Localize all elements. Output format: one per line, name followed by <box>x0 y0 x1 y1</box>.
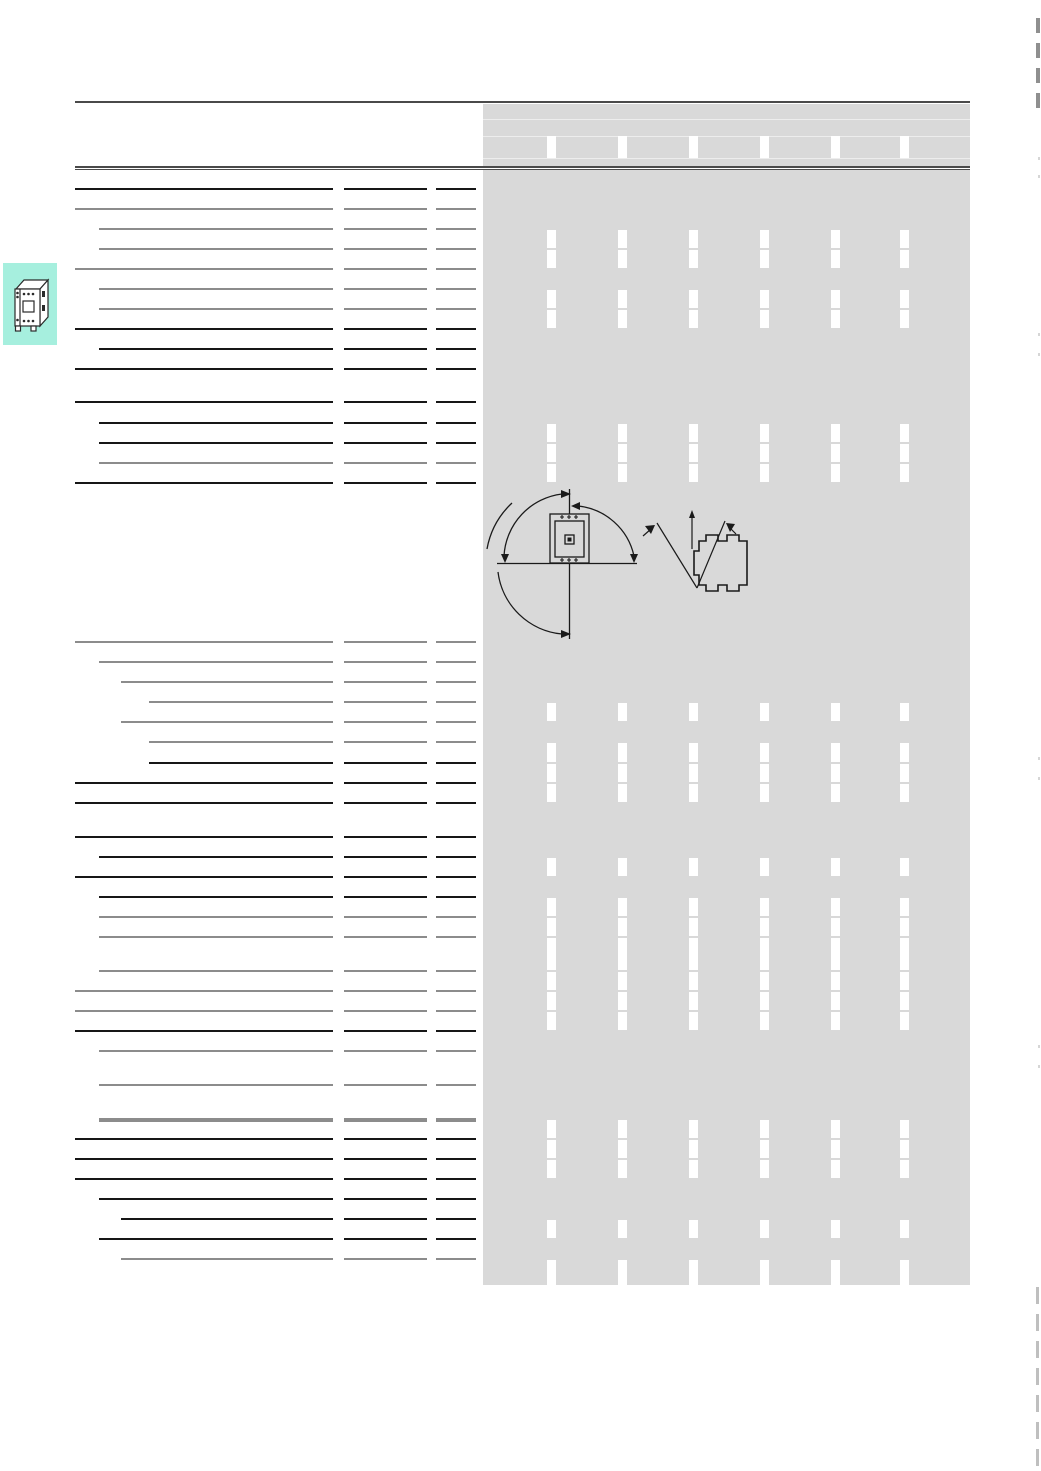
column-gap <box>618 1140 627 1160</box>
page-edge-mark <box>1036 1449 1039 1466</box>
row-label-underline <box>75 836 333 838</box>
column-gap <box>618 972 627 992</box>
front-view-rotation-diagram <box>487 489 638 639</box>
row-right-underline <box>436 368 476 370</box>
row-right-underline <box>436 1238 476 1240</box>
column-gap <box>547 444 556 464</box>
column-gap <box>900 1160 909 1178</box>
row-right-underline <box>436 308 476 310</box>
table-row <box>483 288 970 308</box>
column-gap <box>900 1120 909 1140</box>
table-row <box>483 681 970 701</box>
page-edge-mark <box>1038 1065 1040 1068</box>
row-right-underline <box>436 188 476 190</box>
column-gap <box>900 938 909 972</box>
row-right-underline <box>436 876 476 878</box>
table-row <box>483 661 970 681</box>
row-label-underline <box>99 1050 333 1052</box>
row-label-underline <box>99 462 333 464</box>
column-gap <box>900 918 909 938</box>
table-row <box>483 268 970 288</box>
side-view-tilt-diagram <box>643 510 747 591</box>
column-gap <box>689 444 698 464</box>
column-gap <box>760 703 769 721</box>
column-gap <box>900 1012 909 1030</box>
table-row <box>483 1010 970 1030</box>
column-gap <box>760 424 769 444</box>
row-mid-underline <box>344 188 427 190</box>
table-row <box>483 170 970 188</box>
column-gap <box>831 1120 840 1140</box>
column-gap <box>831 918 840 938</box>
table-row <box>483 348 970 368</box>
row-mid-underline <box>344 1118 427 1122</box>
row-label-underline <box>121 1218 333 1220</box>
section-tab <box>3 263 57 345</box>
column-gap <box>689 992 698 1012</box>
row-label-underline <box>75 328 333 330</box>
column-gap <box>618 1220 627 1238</box>
column-gap <box>618 250 627 268</box>
column-gap <box>618 938 627 972</box>
row-mid-underline <box>344 1198 427 1200</box>
row-right-underline <box>436 1218 476 1220</box>
column-gap <box>760 1120 769 1140</box>
page-edge-mark <box>1036 1287 1039 1304</box>
column-gap <box>900 898 909 918</box>
column-gap <box>831 703 840 721</box>
row-mid-underline <box>344 661 427 663</box>
table-row <box>483 1178 970 1198</box>
table-row <box>483 701 970 721</box>
column-gap <box>547 1120 556 1140</box>
row-label-underline <box>99 228 333 230</box>
column-gap <box>618 230 627 250</box>
column-gap <box>689 898 698 918</box>
row-label-underline <box>99 1118 333 1122</box>
row-right-underline <box>436 462 476 464</box>
row-right-underline <box>436 896 476 898</box>
header-subline <box>483 158 970 159</box>
row-mid-underline <box>344 1158 427 1160</box>
column-gap <box>760 992 769 1012</box>
row-label-underline <box>149 762 333 764</box>
row-right-underline <box>436 856 476 858</box>
page-edge-mark <box>1038 333 1040 336</box>
column-gap <box>547 1220 556 1238</box>
column-gap <box>547 898 556 918</box>
column-gap <box>760 1012 769 1030</box>
column-gap <box>900 444 909 464</box>
row-mid-underline <box>344 1084 427 1086</box>
column-gap <box>547 1012 556 1030</box>
row-right-underline <box>436 1178 476 1180</box>
column-gap <box>689 1120 698 1140</box>
column-gap <box>547 250 556 268</box>
table-row <box>483 1198 970 1218</box>
column-gap <box>831 764 840 784</box>
row-mid-underline <box>344 1218 427 1220</box>
column-gap <box>900 784 909 802</box>
row-label-underline <box>75 782 333 784</box>
row-label-underline <box>75 1178 333 1180</box>
row-mid-underline <box>344 836 427 838</box>
row-right-underline <box>436 208 476 210</box>
table-row <box>483 1158 970 1178</box>
row-right-underline <box>436 482 476 484</box>
column-gap <box>831 464 840 482</box>
column-gap <box>900 1220 909 1238</box>
table-row <box>483 422 970 442</box>
table-row <box>483 1138 970 1158</box>
column-gap <box>618 703 627 721</box>
row-right-underline <box>436 1258 476 1260</box>
column-gap <box>618 310 627 328</box>
column-gap <box>760 230 769 250</box>
row-right-underline <box>436 681 476 683</box>
column-gap <box>900 972 909 992</box>
row-label-underline <box>75 990 333 992</box>
row-label-underline <box>121 721 333 723</box>
column-gap <box>689 784 698 802</box>
column-gap <box>689 424 698 444</box>
row-label-underline <box>99 248 333 250</box>
column-gap <box>689 858 698 876</box>
table-row <box>483 462 970 482</box>
row-right-underline <box>436 1118 476 1122</box>
row-right-underline <box>436 328 476 330</box>
column-gap <box>831 784 840 802</box>
page-edge-mark <box>1036 43 1040 58</box>
row-mid-underline <box>344 401 427 403</box>
row-mid-underline <box>344 896 427 898</box>
page-edge-mark <box>1036 1368 1039 1385</box>
column-gap <box>689 1012 698 1030</box>
column-gap <box>547 424 556 444</box>
column-gap <box>547 972 556 992</box>
header-subline <box>483 136 970 137</box>
column-gap <box>900 464 909 482</box>
row-mid-underline <box>344 936 427 938</box>
double-rule-upper <box>75 166 970 168</box>
column-gap <box>689 764 698 784</box>
column-gap <box>547 784 556 802</box>
row-label-underline <box>75 401 333 403</box>
table-row <box>483 228 970 248</box>
row-label-underline <box>99 896 333 898</box>
page-edge-mark <box>1038 175 1040 178</box>
column-gap <box>547 290 556 310</box>
table-row <box>483 1050 970 1084</box>
page-edge-mark <box>1036 1422 1039 1439</box>
column-gap <box>618 764 627 784</box>
page-edge-mark <box>1036 18 1040 33</box>
row-right-underline <box>436 288 476 290</box>
column-gap <box>618 898 627 918</box>
column-gap <box>618 743 627 764</box>
row-label-underline <box>75 188 333 190</box>
column-gap <box>831 1140 840 1160</box>
column-gap <box>618 1012 627 1030</box>
row-mid-underline <box>344 462 427 464</box>
page-edge-mark <box>1038 757 1040 760</box>
row-right-underline <box>436 1050 476 1052</box>
row-label-underline <box>75 1158 333 1160</box>
row-mid-underline <box>344 482 427 484</box>
column-gap <box>831 310 840 328</box>
page-edge-mark <box>1036 68 1040 83</box>
row-mid-underline <box>344 1258 427 1260</box>
column-gap <box>547 992 556 1012</box>
row-mid-underline <box>344 1138 427 1140</box>
column-gap <box>547 764 556 784</box>
column-gap <box>618 464 627 482</box>
page-edge-mark <box>1036 1395 1039 1412</box>
column-gap <box>760 918 769 938</box>
column-gap <box>831 972 840 992</box>
column-gap <box>900 290 909 310</box>
table-row <box>483 308 970 328</box>
column-gap <box>618 1160 627 1178</box>
header-column-gap <box>547 136 556 158</box>
column-gap <box>760 1260 769 1285</box>
column-gap <box>760 858 769 876</box>
row-right-underline <box>436 1030 476 1032</box>
column-gap <box>689 938 698 972</box>
column-gap <box>831 250 840 268</box>
column-gap <box>689 1160 698 1178</box>
header-column-gap <box>618 136 627 158</box>
column-gap <box>760 743 769 764</box>
row-label-underline <box>75 368 333 370</box>
row-label-underline <box>121 681 333 683</box>
column-gap <box>547 1260 556 1285</box>
column-gap <box>760 290 769 310</box>
table-row <box>483 876 970 896</box>
row-label-underline <box>149 741 333 743</box>
row-mid-underline <box>344 208 427 210</box>
row-label-underline <box>99 916 333 918</box>
table-row <box>483 802 970 836</box>
column-gap <box>618 1260 627 1285</box>
column-gap <box>689 290 698 310</box>
column-gap <box>900 992 909 1012</box>
row-right-underline <box>436 1010 476 1012</box>
row-label-underline <box>99 1198 333 1200</box>
column-gap <box>689 703 698 721</box>
column-gap <box>689 230 698 250</box>
column-gap <box>900 764 909 784</box>
column-gap <box>831 1160 840 1178</box>
page-edge-mark <box>1036 93 1040 108</box>
column-gap <box>689 310 698 328</box>
row-label-underline <box>99 288 333 290</box>
table-row <box>483 762 970 782</box>
column-gap <box>900 250 909 268</box>
table-row <box>483 401 970 422</box>
row-label-underline <box>99 970 333 972</box>
row-mid-underline <box>344 970 427 972</box>
table-row <box>483 1258 970 1285</box>
column-gap <box>618 858 627 876</box>
column-gap <box>618 784 627 802</box>
row-mid-underline <box>344 856 427 858</box>
page-edge-mark <box>1036 1314 1039 1331</box>
column-gap <box>760 444 769 464</box>
row-label-underline <box>75 1138 333 1140</box>
column-gap <box>618 1120 627 1140</box>
column-gap <box>689 1220 698 1238</box>
column-gap <box>900 1260 909 1285</box>
table-row <box>483 1084 970 1118</box>
catalog-page <box>0 0 1041 1471</box>
table-row <box>483 1238 970 1258</box>
row-right-underline <box>436 228 476 230</box>
column-gap <box>760 898 769 918</box>
row-right-underline <box>436 442 476 444</box>
row-mid-underline <box>344 1178 427 1180</box>
header-subline <box>483 119 970 120</box>
row-mid-underline <box>344 762 427 764</box>
table-row <box>483 896 970 916</box>
column-gap <box>831 1260 840 1285</box>
column-gap <box>547 464 556 482</box>
row-label-underline <box>75 208 333 210</box>
row-mid-underline <box>344 348 427 350</box>
row-label-underline <box>99 661 333 663</box>
table-row <box>483 208 970 228</box>
column-gap <box>760 972 769 992</box>
column-gap <box>547 230 556 250</box>
row-right-underline <box>436 401 476 403</box>
column-gap <box>618 424 627 444</box>
row-label-underline <box>75 1010 333 1012</box>
column-gap <box>900 858 909 876</box>
row-right-underline <box>436 1198 476 1200</box>
row-right-underline <box>436 762 476 764</box>
row-mid-underline <box>344 802 427 804</box>
row-label-underline <box>99 442 333 444</box>
table-row <box>483 836 970 856</box>
column-gap <box>831 858 840 876</box>
table-row <box>483 936 970 970</box>
mounting-position-diagram <box>483 482 970 641</box>
row-mid-underline <box>344 368 427 370</box>
column-gap <box>760 310 769 328</box>
column-gap <box>618 444 627 464</box>
row-label-underline <box>75 641 333 643</box>
column-gap <box>760 784 769 802</box>
page-edge-mark <box>1038 1045 1040 1048</box>
column-gap <box>760 1220 769 1238</box>
column-gap <box>900 424 909 444</box>
column-gap <box>689 918 698 938</box>
column-gap <box>547 310 556 328</box>
row-right-underline <box>436 248 476 250</box>
header-column-gap <box>689 136 698 158</box>
table-row <box>483 970 970 990</box>
row-label-underline <box>121 1258 333 1260</box>
column-gap <box>831 1220 840 1238</box>
header-column-gap <box>900 136 909 158</box>
column-gap <box>831 1012 840 1030</box>
column-gap <box>760 1160 769 1178</box>
column-gap <box>547 703 556 721</box>
column-gap <box>760 464 769 482</box>
row-right-underline <box>436 916 476 918</box>
row-right-underline <box>436 741 476 743</box>
row-right-underline <box>436 422 476 424</box>
row-right-underline <box>436 661 476 663</box>
column-gap <box>547 938 556 972</box>
row-right-underline <box>436 836 476 838</box>
table-row <box>483 916 970 936</box>
row-label-underline <box>99 1084 333 1086</box>
column-gap <box>900 230 909 250</box>
column-gap <box>760 1140 769 1160</box>
row-mid-underline <box>344 268 427 270</box>
contactor-product-icon <box>3 263 57 345</box>
row-right-underline <box>436 782 476 784</box>
column-gap <box>831 444 840 464</box>
table-row <box>483 1030 970 1050</box>
row-right-underline <box>436 268 476 270</box>
column-gap <box>760 250 769 268</box>
row-label-underline <box>99 308 333 310</box>
row-label-underline <box>99 422 333 424</box>
row-mid-underline <box>344 248 427 250</box>
table-row <box>483 856 970 876</box>
row-mid-underline <box>344 1010 427 1012</box>
row-mid-underline <box>344 876 427 878</box>
row-label-underline <box>75 482 333 484</box>
column-gap <box>831 898 840 918</box>
row-label-underline <box>75 1030 333 1032</box>
row-label-underline <box>99 936 333 938</box>
row-mid-underline <box>344 681 427 683</box>
row-mid-underline <box>344 721 427 723</box>
row-mid-underline <box>344 1050 427 1052</box>
row-right-underline <box>436 990 476 992</box>
page-edge-mark <box>1038 157 1040 160</box>
column-gap <box>618 992 627 1012</box>
table-row <box>483 641 970 661</box>
column-gap <box>618 918 627 938</box>
row-right-underline <box>436 802 476 804</box>
row-mid-underline <box>344 741 427 743</box>
column-gap <box>831 424 840 444</box>
page-edge-mark <box>1038 353 1040 356</box>
row-mid-underline <box>344 442 427 444</box>
column-gap <box>831 290 840 310</box>
column-gap <box>547 743 556 764</box>
row-mid-underline <box>344 782 427 784</box>
row-mid-underline <box>344 228 427 230</box>
row-mid-underline <box>344 328 427 330</box>
column-gap <box>831 992 840 1012</box>
row-right-underline <box>436 970 476 972</box>
table-row <box>483 990 970 1010</box>
table-row <box>483 248 970 268</box>
column-gap <box>547 918 556 938</box>
page-edge-mark <box>1036 1341 1039 1358</box>
row-mid-underline <box>344 308 427 310</box>
column-gap <box>547 858 556 876</box>
table-row <box>483 741 970 762</box>
column-gap <box>831 743 840 764</box>
column-gap <box>689 743 698 764</box>
row-right-underline <box>436 1158 476 1160</box>
